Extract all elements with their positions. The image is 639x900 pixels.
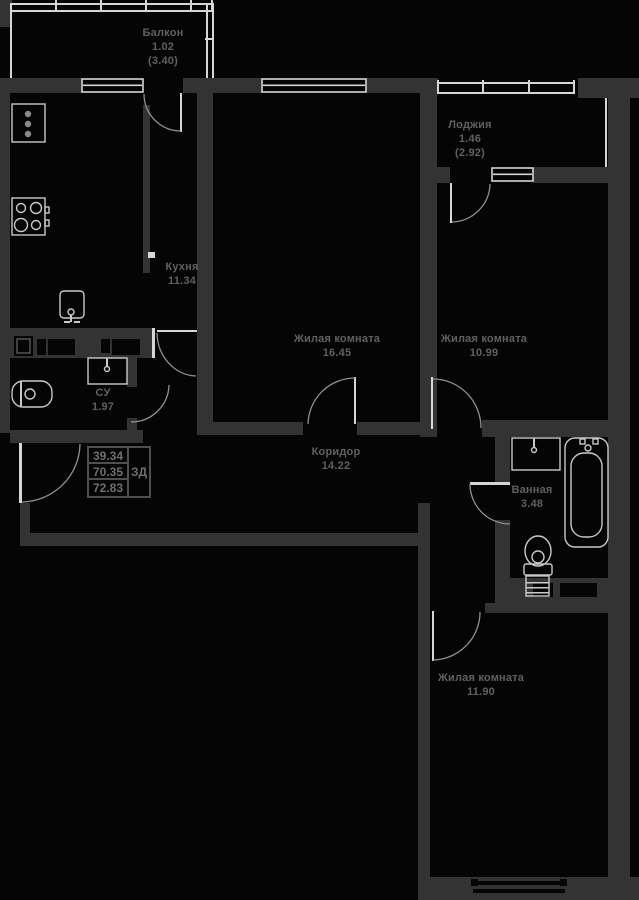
plan-line bbox=[152, 328, 155, 358]
wall bbox=[127, 358, 137, 387]
living2-door-arc bbox=[433, 379, 481, 428]
wall bbox=[608, 98, 630, 877]
wall bbox=[418, 503, 430, 900]
wall-niche bbox=[101, 339, 110, 353]
entrance-door-arc bbox=[22, 444, 80, 502]
wall bbox=[143, 105, 150, 273]
bathtub-tap bbox=[593, 439, 598, 444]
room-label-bathroom: Ванная 3.48 bbox=[492, 483, 572, 511]
wall bbox=[10, 430, 143, 443]
plan-line bbox=[145, 0, 147, 12]
kitchen-sink bbox=[60, 291, 84, 318]
room-area: 11.90 bbox=[401, 685, 561, 699]
stove-burner bbox=[15, 219, 28, 232]
room-name: Лоджия bbox=[410, 118, 530, 132]
wall-niche bbox=[112, 339, 140, 355]
room-name: Жилая комната bbox=[257, 332, 417, 346]
room-label-living2: Жилая комната 10.99 bbox=[404, 332, 564, 360]
wall bbox=[437, 167, 450, 183]
wall bbox=[578, 78, 639, 98]
wall bbox=[495, 437, 510, 483]
plan-line bbox=[528, 80, 530, 94]
plan-line bbox=[157, 330, 197, 332]
fridge-dot bbox=[25, 111, 31, 117]
plan-line bbox=[12, 3, 213, 5]
area-values: 39.34 70.35 72.83 bbox=[89, 448, 127, 496]
room-name: СУ bbox=[73, 386, 133, 400]
room-name: Ванная bbox=[492, 483, 572, 497]
su-washbasin-tap bbox=[105, 367, 110, 372]
su-door-arc bbox=[131, 385, 169, 422]
plan-line bbox=[431, 377, 433, 429]
plan-line bbox=[180, 93, 182, 132]
window-glass-line bbox=[493, 174, 532, 176]
room-label-corridor: Коридор 14.22 bbox=[276, 445, 396, 473]
room-label-balcony: Балкон 1.02 (3.40) bbox=[103, 26, 223, 68]
wall bbox=[533, 167, 608, 183]
wall-niche bbox=[560, 583, 597, 597]
wall bbox=[485, 603, 495, 613]
room-area: 3.48 bbox=[492, 497, 572, 511]
kitchen-sink-tap bbox=[74, 321, 80, 323]
wall bbox=[183, 78, 262, 93]
wall bbox=[366, 78, 438, 93]
plan-line bbox=[100, 0, 102, 12]
bath-washbasin-tap bbox=[532, 448, 537, 453]
bathtub-tap bbox=[585, 445, 591, 451]
window-glass-line bbox=[263, 85, 365, 87]
bath-washbasin-tap bbox=[533, 438, 535, 447]
kitchen-sink-tap bbox=[64, 321, 70, 323]
kitchen-sink-tap bbox=[68, 309, 74, 315]
plan-line bbox=[55, 0, 57, 12]
room-label-living3: Жилая комната 11.90 bbox=[401, 671, 561, 699]
fridge-dot bbox=[25, 121, 31, 127]
room-label-living1: Жилая комната 16.45 bbox=[257, 332, 417, 360]
room-name: Коридор bbox=[276, 445, 396, 459]
living3-door-arc bbox=[433, 612, 480, 660]
plan-line bbox=[354, 377, 356, 424]
bath-washbasin bbox=[512, 438, 560, 470]
plan-line bbox=[437, 80, 439, 94]
wall bbox=[20, 533, 430, 546]
shaft-hatch-line bbox=[526, 582, 549, 584]
floor-plan: Балкон 1.02 (3.40) Лоджия 1.46 (2.92) Ку… bbox=[0, 0, 639, 900]
room-area-total: (3.40) bbox=[103, 54, 223, 68]
plan-line bbox=[450, 183, 452, 223]
room-area-total: (2.92) bbox=[410, 146, 530, 160]
wall bbox=[0, 78, 82, 93]
room-label-su: СУ 1.97 bbox=[73, 386, 133, 414]
stove-burner bbox=[17, 204, 26, 213]
wall-niche bbox=[473, 889, 565, 893]
su-toilet-tank bbox=[20, 381, 22, 407]
room-area: 10.99 bbox=[404, 346, 564, 360]
area-row: 39.34 bbox=[89, 448, 127, 464]
fridge-dot bbox=[25, 131, 31, 137]
wall bbox=[0, 93, 10, 433]
area-code: ЗД bbox=[127, 448, 149, 496]
wall bbox=[495, 520, 510, 578]
bath-toilet-seat bbox=[532, 551, 544, 563]
plan-line bbox=[148, 252, 155, 258]
plan-line bbox=[19, 443, 22, 503]
room-label-loggia: Лоджия 1.46 (2.92) bbox=[410, 118, 530, 160]
room-name: Жилая комната bbox=[404, 332, 564, 346]
stove-burner bbox=[32, 221, 41, 230]
bathtub-inner bbox=[571, 453, 602, 537]
room-area: 14.22 bbox=[276, 459, 396, 473]
wall bbox=[210, 422, 303, 435]
loggia-door-arc bbox=[452, 184, 490, 222]
stove-burner bbox=[31, 203, 42, 214]
kitchen-sink-tap bbox=[70, 315, 72, 322]
wall-niche bbox=[473, 881, 565, 885]
area-info-table: 39.34 70.35 72.83 ЗД bbox=[87, 446, 151, 498]
room-area: 16.45 bbox=[257, 346, 417, 360]
wall bbox=[357, 422, 433, 435]
wall bbox=[482, 420, 630, 437]
room-label-kitchen: Кухня 11.34 bbox=[122, 260, 242, 288]
room-area: 11.34 bbox=[122, 274, 242, 288]
stove-knob bbox=[45, 220, 49, 226]
room-area: 1.46 bbox=[410, 132, 530, 146]
kitchen-door-arc bbox=[157, 333, 196, 376]
room-name: Жилая комната bbox=[401, 671, 561, 685]
stove-knob bbox=[45, 207, 49, 213]
su-washbasin-tap bbox=[106, 358, 108, 366]
plan-line bbox=[437, 82, 575, 84]
room-area: 1.97 bbox=[73, 400, 133, 414]
room-name: Балкон bbox=[103, 26, 223, 40]
living1-door-arc bbox=[308, 378, 355, 424]
plan-line bbox=[190, 0, 192, 12]
room-name: Кухня bbox=[122, 260, 242, 274]
plan-line bbox=[10, 3, 12, 78]
plan-line bbox=[605, 98, 607, 167]
plan-line bbox=[482, 80, 484, 94]
bathtub-tap bbox=[580, 439, 585, 444]
wall-niche bbox=[37, 339, 46, 355]
plan-line bbox=[437, 92, 575, 94]
wall-niche bbox=[533, 583, 553, 597]
area-row: 72.83 bbox=[89, 480, 127, 496]
plan-line bbox=[573, 80, 575, 94]
plan-line bbox=[432, 611, 434, 661]
plan-line bbox=[12, 10, 213, 12]
shaft-hatch-line bbox=[526, 587, 549, 589]
wall bbox=[420, 877, 639, 900]
area-row: 70.35 bbox=[89, 464, 127, 480]
su-toilet-bowl bbox=[25, 389, 35, 399]
window-glass-line bbox=[83, 85, 142, 87]
shaft-hatch-line bbox=[526, 592, 549, 594]
room-area: 1.02 bbox=[103, 40, 223, 54]
wall-niche bbox=[48, 339, 75, 355]
su-toilet bbox=[12, 381, 52, 407]
